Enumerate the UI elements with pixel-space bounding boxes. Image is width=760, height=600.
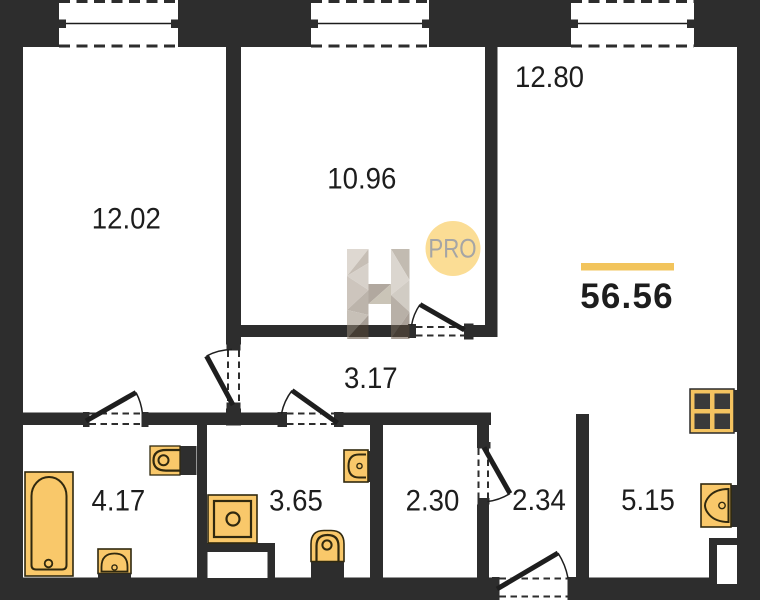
svg-text:12.02: 12.02 <box>92 203 161 236</box>
svg-text:4.17: 4.17 <box>92 484 146 517</box>
svg-text:56.56: 56.56 <box>580 277 674 316</box>
svg-text:5.15: 5.15 <box>621 484 675 517</box>
svg-text:2.34: 2.34 <box>512 484 566 517</box>
svg-text:2.30: 2.30 <box>406 484 460 517</box>
svg-text:PRO: PRO <box>428 235 476 264</box>
svg-text:3.65: 3.65 <box>269 484 323 517</box>
svg-text:3.17: 3.17 <box>344 362 398 395</box>
svg-text:12.80: 12.80 <box>515 61 584 94</box>
svg-text:10.96: 10.96 <box>327 162 396 195</box>
